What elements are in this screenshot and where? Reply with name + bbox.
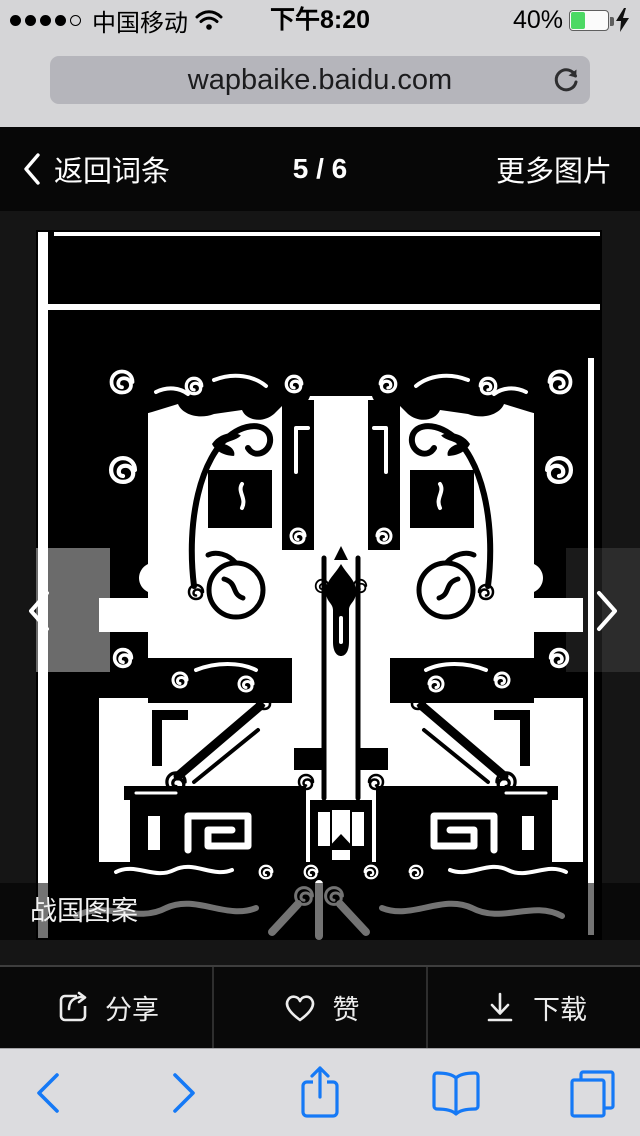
- address-bar: wapbaike.baidu.com: [0, 40, 640, 127]
- share-label: 分享: [105, 988, 159, 1027]
- gallery-header: 返回词条 5 / 6 更多图片: [0, 127, 640, 211]
- bookmarks-icon: [429, 1068, 483, 1118]
- browser-forward-button[interactable]: [156, 1063, 212, 1123]
- more-images-button[interactable]: 更多图片: [496, 127, 612, 211]
- heart-icon: [281, 989, 319, 1027]
- browser-chrome: 中国移动 下午8:20 40% wapb: [0, 0, 640, 127]
- chevron-left-icon[interactable]: [26, 589, 52, 633]
- battery-percent-label: 40%: [513, 6, 563, 35]
- refresh-icon[interactable]: [552, 66, 580, 94]
- back-chevron-icon: [35, 1072, 61, 1114]
- download-label: 下载: [533, 988, 587, 1027]
- forward-chevron-icon: [171, 1072, 197, 1114]
- download-icon: [481, 989, 519, 1027]
- battery-icon: [569, 10, 609, 31]
- image-viewer: 战国图案: [0, 211, 640, 965]
- image-action-bar: 分享 赞 下载: [0, 965, 640, 1048]
- url-field[interactable]: wapbaike.baidu.com: [50, 56, 590, 104]
- battery-fill: [571, 12, 585, 29]
- caption-bar: 战国图案: [0, 883, 640, 940]
- tabs-icon: [566, 1068, 618, 1118]
- charging-bolt-icon: [615, 8, 630, 32]
- share-button[interactable]: 分享: [0, 967, 212, 1048]
- image-caption: 战国图案: [30, 883, 640, 940]
- safari-toolbar: [0, 1048, 640, 1136]
- browser-tabs-button[interactable]: [564, 1063, 620, 1123]
- url-text: wapbaike.baidu.com: [50, 56, 590, 104]
- share-box-icon: [53, 989, 91, 1027]
- safari-mobile-screen: 中国移动 下午8:20 40% wapb: [0, 0, 640, 1136]
- status-bar: 中国移动 下午8:20 40%: [0, 0, 640, 40]
- chevron-right-icon[interactable]: [594, 589, 620, 633]
- browser-share-button[interactable]: [292, 1063, 348, 1123]
- warring-states-pattern-image[interactable]: [36, 230, 602, 940]
- like-label: 赞: [333, 988, 360, 1027]
- like-button[interactable]: 赞: [212, 967, 426, 1048]
- browser-bookmarks-button[interactable]: [428, 1063, 484, 1123]
- browser-back-button[interactable]: [20, 1063, 76, 1123]
- download-button[interactable]: 下载: [426, 967, 640, 1048]
- share-icon: [294, 1064, 346, 1122]
- status-right: 40%: [513, 0, 630, 40]
